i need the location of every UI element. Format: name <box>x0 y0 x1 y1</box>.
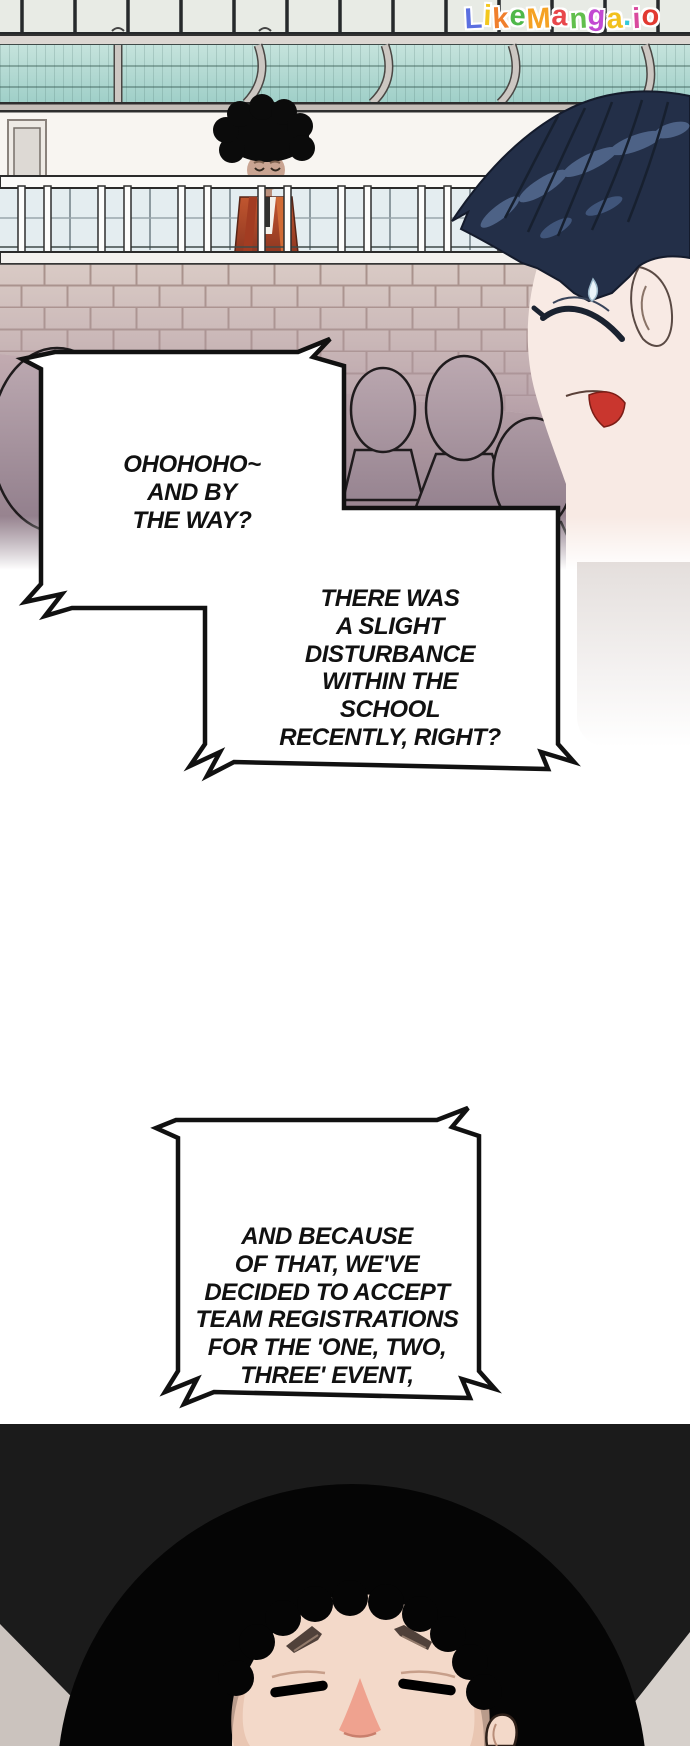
watermark-letter: M <box>526 4 553 34</box>
watermark-letter: L <box>463 5 483 35</box>
watermark-letter: o <box>641 2 661 32</box>
bubble3-text: AND BECAUSE OF THAT, WE'VE DECIDED TO AC… <box>177 1223 477 1390</box>
watermark-letter: n <box>568 5 588 35</box>
speech-bubbles <box>0 0 690 1746</box>
watermark: LikeManga.io <box>464 3 660 32</box>
watermark-letter: g <box>587 2 607 32</box>
manga-page: OHOHOHO~ AND BY THE WAY? THERE WAS A SLI… <box>0 0 690 1746</box>
bubble1-text: OHOHOHO~ AND BY THE WAY? <box>72 451 312 534</box>
watermark-letter: e <box>508 2 527 32</box>
bubble2-text: THERE WAS A SLIGHT DISTURBANCE WITHIN TH… <box>234 585 546 752</box>
watermark-letter: a <box>605 5 624 35</box>
watermark-letter: a <box>551 2 570 32</box>
watermark-letter: k <box>491 5 510 35</box>
